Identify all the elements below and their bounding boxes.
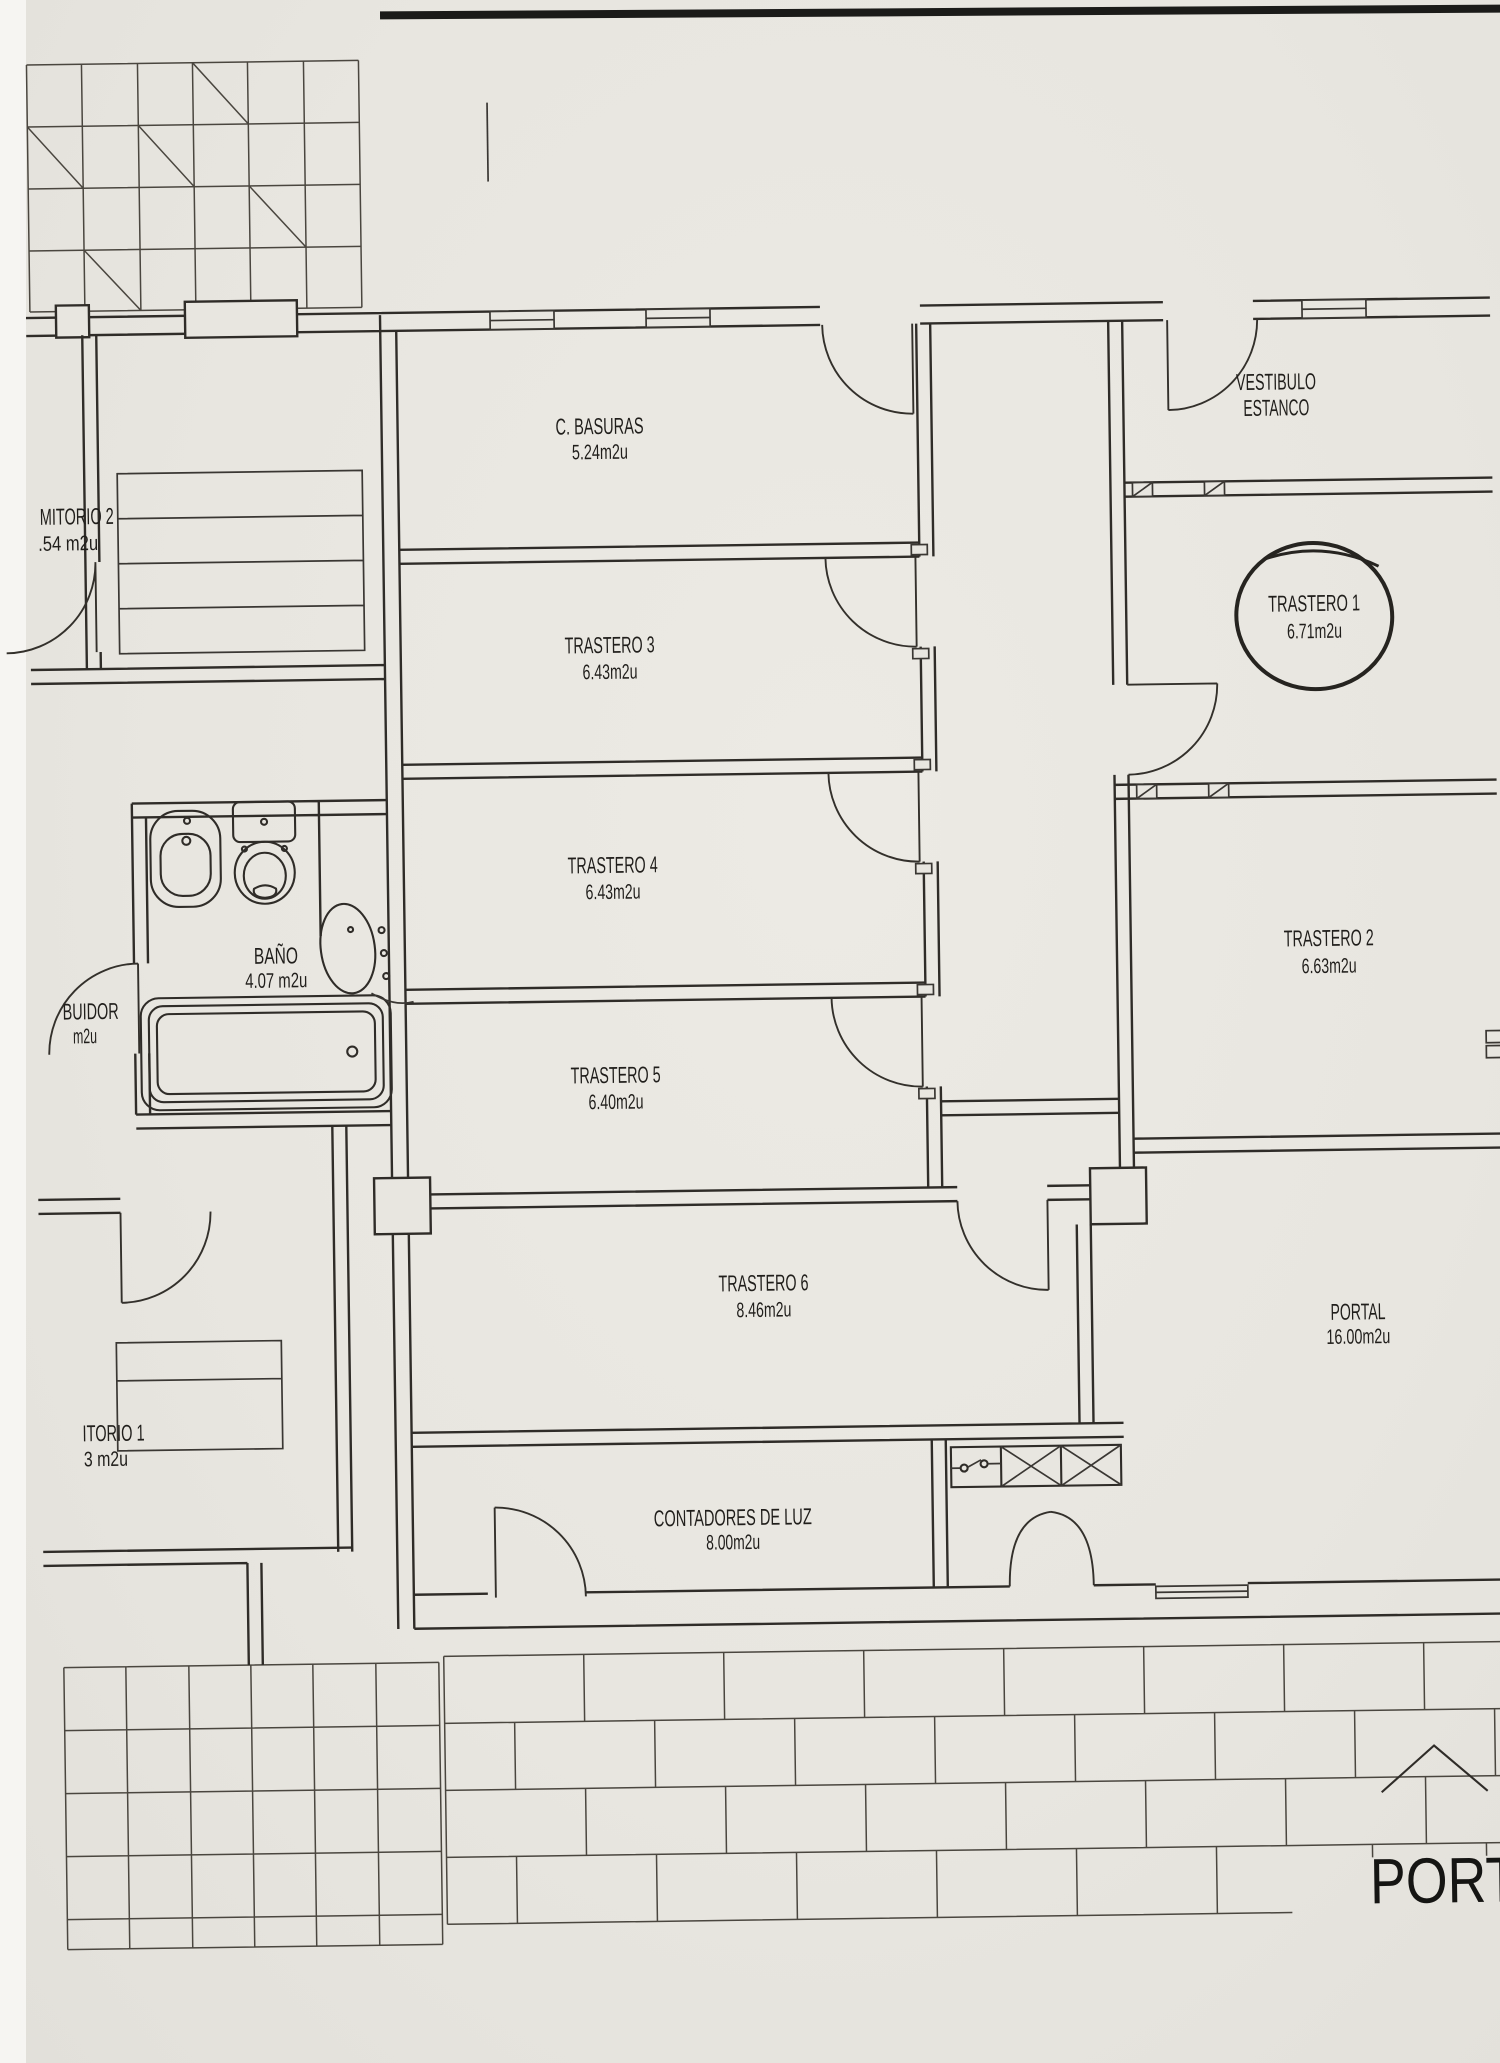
tile-grid-bottom-left [64,1662,443,1949]
big-portal-title: PORTAL [1369,1842,1500,1917]
door-dormitorio-2 [5,562,96,653]
wall-pillar [1090,1167,1147,1224]
door-trastero-5 [832,997,923,1088]
electric-meter-box [951,1445,1122,1487]
label-contadores: CONTADORES DE LUZ [654,1503,812,1531]
label-estanco: ESTANCO [1243,394,1309,421]
trastero-1-circle-annotation [1227,533,1402,699]
door-contadores [495,1506,586,1597]
area-contadores: 8.00m2u [706,1531,760,1555]
closet-shelves [117,470,364,653]
area-distribuidor: m2u [73,1025,97,1048]
label-portal: PORTAL [1330,1298,1385,1325]
door-trastero-1 [1127,683,1218,774]
bathtub [141,995,393,1110]
area-bano: 4.07 m2u [245,969,307,993]
scanned-floor-plan: C. BASURAS 5.24m2u VESTIBULO ESTANCO MIT… [0,0,1500,2063]
area-portal: 16.00m2u [1326,1325,1390,1349]
area-dormitorio-2: .54 m2u [38,532,98,556]
label-vestibulo: VESTIBULO [1236,368,1316,395]
label-c-basuras: C. BASURAS [555,412,643,439]
area-trastero-5: 6.40m2u [588,1090,643,1114]
label-trastero-5: TRASTERO 5 [570,1061,660,1088]
label-trastero-6: TRASTERO 6 [718,1269,808,1296]
door-basuras [822,324,913,415]
door-trastero-3 [825,557,916,648]
label-dormitorio-1: ITORIO 1 [82,1419,144,1446]
roof-chevron [1381,1745,1488,1792]
label-bano: BAÑO [254,942,298,969]
area-trastero-2: 6.63m2u [1302,955,1357,979]
label-trastero-1: TRASTERO 1 [1268,589,1360,616]
wall-pier [56,305,89,337]
brick-pattern-bottom [444,1641,1500,1924]
bidet [150,810,221,907]
door-swings [2,319,1275,1604]
area-dormitorio-1: 3 m2u [84,1448,128,1472]
tile-grid-top-left [26,60,361,312]
label-trastero-4: TRASTERO 4 [568,851,658,878]
door-dormitorio-1 [120,1212,211,1303]
area-trastero-3: 6.43m2u [582,661,637,685]
wall-pier [185,300,297,338]
door-jambs [910,481,1233,1098]
floor-plan-drawing: C. BASURAS 5.24m2u VESTIBULO ESTANCO MIT… [0,0,1500,2063]
sink [315,900,414,1005]
label-dormitorio-2: MITORIO 2 [40,503,114,530]
wall-pillar [374,1177,431,1234]
area-trastero-1: 6.71m2u [1287,620,1342,644]
drain [347,1046,357,1056]
label-trastero-3: TRASTERO 3 [564,631,654,658]
label-trastero-2: TRASTERO 2 [1284,924,1374,951]
area-trastero-4: 6.43m2u [585,881,640,905]
door-trastero-6 [957,1200,1048,1291]
area-c-basuras: 5.24m2u [572,441,628,465]
label-distribuidor: BUIDOR [62,998,118,1025]
room-labels: C. BASURAS 5.24m2u VESTIBULO ESTANCO MIT… [36,367,1393,1564]
door-trastero-4 [828,772,919,863]
area-trastero-6: 8.46m2u [736,1298,791,1322]
entrance-arch [1009,1511,1094,1586]
